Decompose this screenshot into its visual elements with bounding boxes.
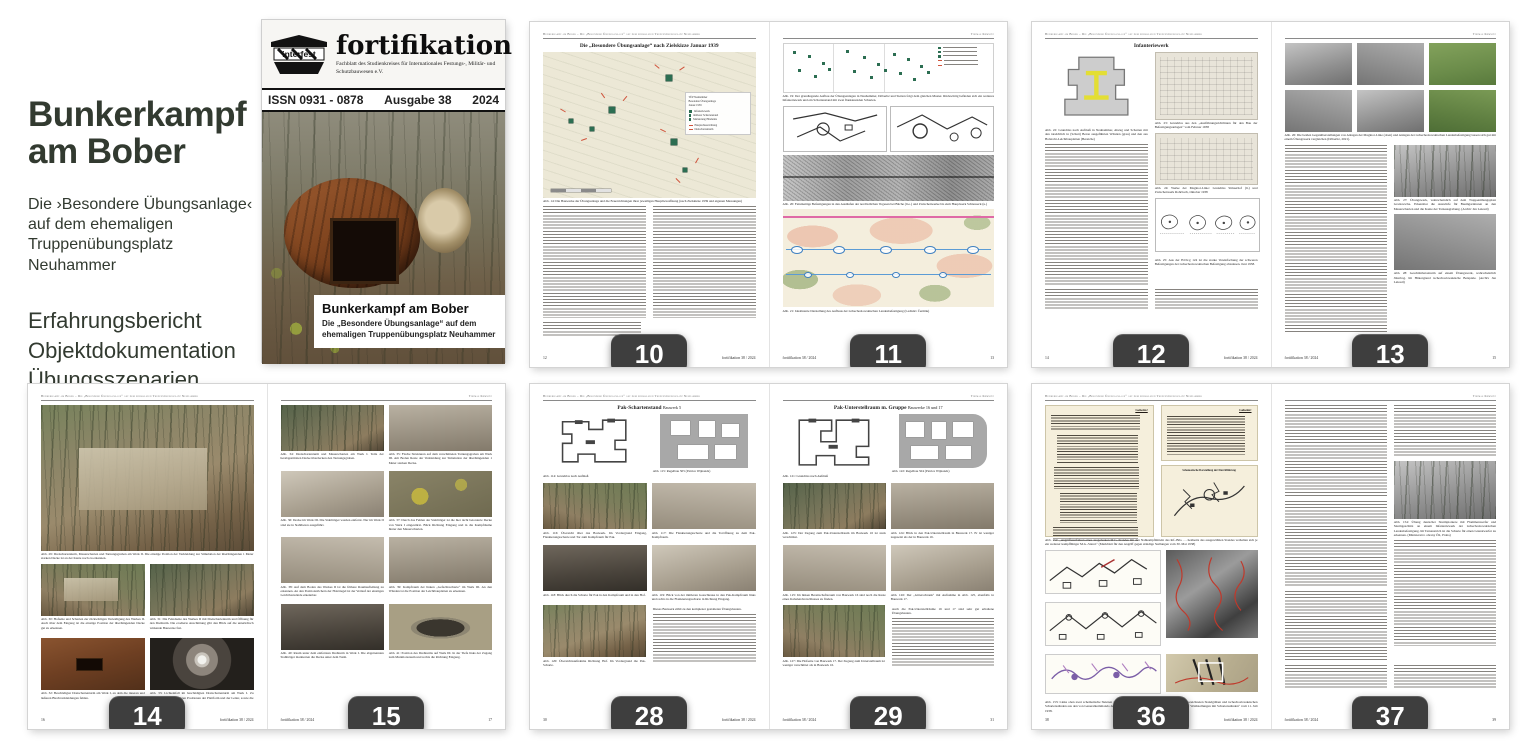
- figure-caption: Abb. 24: Werke der Maginot-Linie: Grundr…: [1155, 186, 1258, 195]
- figure-caption: Abb. 37: Durch das Fehlen der Stahlträge…: [389, 518, 492, 531]
- left-column: Abb. 22: Grundriss nach Aufmaß in Neuham…: [1045, 52, 1148, 286]
- page-thumbnail-14[interactable]: Bunkerkampf am Bober – Die „Besondere Üb…: [28, 384, 267, 729]
- magazine-title: fortifikation: [336, 33, 512, 59]
- page-thumbnail-12[interactable]: Bunkerkampf am Bober – Die „Besondere Üb…: [1032, 22, 1271, 367]
- journal-footer: fortifikation 38 / 2024: [783, 718, 817, 722]
- fort-symbol: [880, 246, 892, 254]
- figure-caption: Abb. 119: Blick von der mittleren Gassch…: [652, 593, 756, 602]
- figure-caption: Abb. 122: Regelbau 504 (Patrice Wijnands…: [892, 469, 994, 473]
- figure-cell: Abb. 35: Flache Strukturen auf dem versc…: [389, 405, 492, 468]
- photo-thumbnail: [652, 545, 756, 591]
- fort-symbol: [939, 272, 947, 278]
- title-line-1: Bunkerkampf: [28, 97, 263, 134]
- plan-room: [906, 422, 924, 437]
- figure-cell: Abb. 120: Übersichtsaufnahme Richtung Ho…: [543, 605, 646, 670]
- floorplan-figure: [1045, 52, 1148, 122]
- badge-number: 13: [1376, 339, 1405, 368]
- folio: 12: [543, 356, 547, 360]
- figure-cell: Abb. 122: Regelbau 504 (Patrice Wijnands…: [892, 414, 994, 477]
- figure-cell: Abb. 37: Durch das Fehlen der Stahlträge…: [389, 471, 492, 534]
- plan-room: [932, 422, 946, 439]
- figure-cell: Abb. 124: Blick in den Pak-Unterstellrau…: [891, 483, 994, 542]
- fire-direction-mark: [654, 64, 659, 69]
- photo-thumbnail: [1394, 214, 1496, 270]
- legend-swatch-green: [938, 51, 941, 54]
- pdf-page-badge: 29: [850, 696, 926, 729]
- map-legend: TÜP Neuhammer Besondere Übungsanlage Jan…: [685, 92, 751, 136]
- figure-cell: Abb. 118: Blick durch die Scharte für Pa…: [543, 545, 647, 604]
- folio: 14: [1045, 356, 1049, 360]
- photo-thumbnail: [543, 483, 647, 529]
- photo-thumbnail: [389, 537, 492, 583]
- legend-swatch-red: [689, 125, 693, 126]
- figure-cell: Abb. 36: Decke im Werk III. Die Stahlträ…: [281, 471, 384, 534]
- figure-cell: Abb. 34: Dreischartenturm und Mauerschar…: [281, 405, 384, 468]
- spread-10-11: Bunkerkampf am Bober – Die „Besondere Üb…: [530, 22, 1007, 367]
- figure-caption: Abb. 118: Blick durch die Scharte für Pa…: [543, 593, 647, 597]
- spread-36-37: Bunkerkampf am Bober – Die „Besondere Üb…: [1032, 384, 1509, 729]
- article-section-title: Die „Besondere Übungsanlage“ nach Zielsk…: [543, 43, 756, 49]
- figure-cell: Abb. 38: Auf dem Boden des Werkes II ist…: [281, 537, 384, 600]
- legend-item: [938, 64, 990, 67]
- section-title-text: Pak-Unterstellraum m. Gruppe: [834, 405, 907, 411]
- plan-room: [715, 445, 736, 459]
- body-text-placeholder: [1285, 501, 1387, 587]
- figure-caption: Abb. 38: Auf dem Boden des Werkes II ist…: [281, 585, 384, 598]
- running-header-author: Thomas Kemnitz: [783, 32, 995, 39]
- legend-swatch-red: [689, 129, 693, 130]
- figure-cell: Abb. 123: Der Zugang zum Pak-Unterstellr…: [783, 483, 886, 542]
- journal-footer: fortifikation 38 / 2024: [220, 718, 254, 722]
- folio: 31: [990, 718, 994, 722]
- figure-caption: Abb. 19: Der grundlegende Aufbau der Übu…: [783, 94, 995, 103]
- footnotes-placeholder: [1285, 665, 1387, 689]
- scheme-dots: [893, 53, 896, 56]
- plan-room: [671, 421, 690, 435]
- figure-caption: Abb. 114: Grundriss nach Aufmaß: [543, 474, 646, 478]
- planning-map: [1166, 654, 1257, 692]
- map-marker: [569, 119, 573, 123]
- body-column: Dieses Bauwerk zählt zu den komplexer ge…: [653, 605, 756, 670]
- journal-footer: fortifikation 38 / 2024: [1224, 718, 1258, 722]
- map-scale-bar: [551, 189, 611, 192]
- cover-photo: Bunkerkampf am Bober Die „Besondere Übun…: [262, 112, 505, 364]
- bunker-structure: [79, 448, 207, 509]
- figure-caption: Abb. 14: Die Bauwerke der Übungsanlage u…: [543, 199, 756, 203]
- section-title-text: Pak-Schartenstand: [617, 405, 661, 411]
- badge-number: 11: [875, 339, 903, 368]
- figure-caption: Abb. 115: Regelbau 505 (Patrice Wijnands…: [653, 469, 756, 473]
- left-column: [1285, 405, 1387, 661]
- map-marker: [590, 127, 594, 131]
- running-header: Bunkerkampf am Bober – Die „Besondere Üb…: [1045, 32, 1258, 39]
- legend-swatch-green: [938, 47, 941, 50]
- legend-label-placeholder: [944, 64, 978, 67]
- figure-caption: Abb. 117: Die Flankierungsscharte und di…: [652, 531, 756, 540]
- figure-caption: Abb. 23: Grundriss aus den „Ausführungsr…: [1155, 121, 1258, 130]
- body-text-placeholder: [653, 614, 756, 662]
- body-text-placeholder: [1285, 591, 1387, 661]
- plan-room: [911, 446, 937, 459]
- title-line-2: am Bober: [28, 134, 263, 171]
- badge-number: 10: [635, 339, 664, 368]
- article-section-title: Pak-Schartenstand Bauwerk 5: [543, 405, 756, 411]
- fort-symbol: [791, 246, 803, 254]
- photo-thumbnail: [281, 471, 384, 517]
- photo-thumbnail: [389, 471, 492, 517]
- cupola-aperture: [330, 218, 399, 284]
- comparison-figure: [783, 43, 995, 93]
- body-text-placeholder: [1394, 540, 1496, 646]
- legend-swatch-red: [938, 60, 942, 61]
- figure-cell: Abb. 39: Kampfraum der linken „Gefechtss…: [389, 537, 492, 600]
- figure-caption: Abb. 26: Die beiden Gegenüberstellungen …: [1285, 133, 1497, 142]
- cover-article-subtitle: Die „Besondere Übungsanlage“ auf dem ehe…: [322, 319, 497, 341]
- pdf-page-badge: 13: [1352, 334, 1428, 367]
- body-text-placeholder: [1285, 145, 1387, 333]
- body-text-start: Auch die Pak-Unterstellräume 16 und 17 s…: [892, 607, 994, 616]
- journal-footer: fortifikation 38 / 2024: [1285, 356, 1319, 360]
- figure-caption: Abb. 121: Grundriss nach Aufmaß: [783, 474, 885, 478]
- photo-thumbnail: [543, 545, 647, 591]
- article-section-title: Pak-Unterstellraum m. Gruppe Bauwerke 16…: [783, 405, 995, 411]
- floorplan-drawing: [550, 414, 638, 468]
- photo-thumbnail: [1429, 90, 1496, 132]
- legend-swatch-green: [689, 118, 692, 121]
- magazine-cover[interactable]: interfest fortifikation Fachblatt des St…: [262, 20, 505, 362]
- issn-bar: ISSN 0931 - 0878 Ausgabe 38 2024: [262, 88, 505, 112]
- running-header: Bunkerkampf am Bober – Die „Besondere Üb…: [543, 394, 756, 401]
- regelbau-plan: [660, 414, 748, 468]
- article-section-title: Infanteriewerk: [1045, 43, 1258, 49]
- typed-text-placeholder: [1060, 493, 1137, 523]
- folio: 38: [1045, 718, 1049, 722]
- legend-item: [938, 55, 990, 58]
- legend-label: Dreischartenturm: [695, 128, 714, 132]
- fort-symbol: [924, 246, 936, 254]
- typed-text-placeholder: [1051, 415, 1140, 431]
- cover-header: interfest fortifikation Fachblatt des St…: [262, 20, 505, 88]
- photo-thumbnail: [1285, 43, 1352, 85]
- feature-item: Erfahrungsbericht: [28, 306, 263, 335]
- photo-thumbnail: [891, 545, 994, 591]
- schematic-drawing: [1162, 472, 1257, 528]
- fort-symbol: [833, 246, 845, 254]
- photo-thumbnail: [543, 605, 646, 657]
- bunker-line: [786, 274, 992, 275]
- pdf-page-badge: 14: [109, 696, 185, 729]
- figure-cell: Abb. 31: Die Feindseite des Werkes II mi…: [150, 564, 254, 633]
- figure-caption: Abb. 28: Geschützbetonturm auf einem Übu…: [1394, 271, 1496, 284]
- typed-text-placeholder: [1054, 467, 1139, 489]
- fire-direction-mark: [560, 108, 566, 112]
- folio: 15: [1492, 356, 1496, 360]
- figure-cell: Abb. 115: Regelbau 505 (Patrice Wijnands…: [653, 414, 756, 477]
- legend-label-placeholder: [944, 60, 978, 63]
- section-title-sub: Bauwerk 5: [663, 405, 681, 410]
- figure-caption: Abb. 40: Raum unter dem entfernten Dreht…: [281, 651, 384, 660]
- fire-direction-mark: [660, 129, 666, 132]
- running-header: Bunkerkampf am Bober – Die „Besondere Üb…: [1045, 394, 1258, 401]
- photo-thumbnail: [41, 638, 145, 690]
- fortification-sketch: [783, 106, 887, 152]
- photo-thumbnail: [41, 405, 254, 551]
- scheme-panel: [885, 44, 935, 92]
- folio: 13: [990, 356, 994, 360]
- figure-caption: Abb. 31: Die Feindseite des Werkes II mi…: [150, 617, 254, 630]
- page-thumbnail-28[interactable]: Bunkerkampf am Bober – Die „Besondere Üb…: [530, 384, 769, 729]
- legend-label: Markierung Hindernis: [693, 118, 717, 122]
- planning-map-overlay: [1166, 654, 1257, 692]
- sketch-column: [1045, 654, 1159, 699]
- typed-text-placeholder: [1053, 527, 1138, 541]
- badge-number: 37: [1376, 701, 1405, 730]
- fort-symbol: [804, 272, 812, 278]
- geheim-stamp: Geheim!: [1135, 408, 1147, 412]
- footnotes-placeholder: [1045, 289, 1148, 309]
- figure-cell: Abb. 117: Die Flankierungsscharte und di…: [652, 483, 756, 542]
- cupola-damage-hole: [418, 188, 471, 254]
- issue: Ausgabe 38: [384, 93, 451, 107]
- running-header-author: Thomas Kemnitz: [783, 394, 995, 401]
- figure-cell: Abb. 40: Raum unter dem entfernten Dreht…: [281, 604, 384, 663]
- attack-scheme-sketch: [1045, 602, 1161, 646]
- journal-footer: fortifikation 38 / 2024: [783, 356, 817, 360]
- attack-scheme-sketch: [1045, 550, 1161, 594]
- badge-number: 28: [635, 701, 664, 730]
- photo-thumbnail: [150, 564, 254, 616]
- figure-caption: Abb. 127: Die Hofseite von Bauwerk 17. D…: [783, 659, 885, 668]
- map-marker: [671, 139, 677, 145]
- body-text-placeholder: [1285, 405, 1387, 497]
- photo-thumbnail: [1394, 461, 1496, 519]
- journal-footer: fortifikation 38 / 2024: [281, 718, 315, 722]
- body-text-start: Dieses Bauwerk zählt zu den komplexer ge…: [653, 607, 756, 611]
- bunker-structure: [64, 578, 118, 601]
- feature-list: Erfahrungsbericht Objektdokumentation Üb…: [28, 306, 263, 394]
- figure-cell: Abb. 116: Übersicht über das Bauwerk. Im…: [543, 483, 647, 542]
- photo-thumbnail: [281, 405, 384, 451]
- footnotes-placeholder: [1155, 289, 1258, 309]
- historic-plan-figure: [1155, 133, 1258, 185]
- photo-thumbnail: [1285, 90, 1352, 132]
- figure-caption: Abb. 41: Position des Drehturms auf Werk…: [389, 651, 492, 660]
- figure-cell: Abb. 126: Der „Gitterschrank“ mit Aufnah…: [891, 545, 994, 604]
- issn: ISSN 0931 - 0878: [268, 93, 363, 107]
- site-map-figure: TÜP Neuhammer Besondere Übungsanlage Jan…: [543, 52, 756, 198]
- scheme-dots: [793, 51, 796, 54]
- pdf-page-badge: 28: [611, 696, 687, 729]
- photo-thumbnail: [1357, 90, 1424, 132]
- figure-cell: Abb. 30: Hofseite und Scharten zur rückw…: [41, 564, 145, 633]
- photo-thumbnail: [783, 545, 886, 591]
- badge-number: 12: [1137, 339, 1166, 368]
- legend-swatch-green: [938, 55, 941, 58]
- pdf-page-badge: 12: [1113, 334, 1189, 367]
- folio: 17: [488, 718, 492, 722]
- figure-caption: Abb. 21: Idealisierte Darstellung des Au…: [783, 309, 995, 313]
- cover-caption-box: Bunkerkampf am Bober Die „Besondere Übun…: [314, 295, 505, 348]
- right-doc-column: Geheim! Schematische Darstellung der Dur…: [1161, 405, 1258, 537]
- figure-caption: Abb. 35: Flache Strukturen auf dem versc…: [389, 452, 492, 465]
- legend-label-placeholder: [943, 51, 977, 54]
- secret-document-scan: Geheim!: [1161, 405, 1258, 461]
- typed-text-placeholder: [1057, 435, 1138, 463]
- map-marker: [666, 75, 672, 81]
- svg-text:interfest: interfest: [282, 49, 316, 59]
- figure-cell: Abb. 114: Grundriss nach Aufmaß: [543, 414, 646, 482]
- magazine-subtitle: Fachblatt des Studienkreises für Interna…: [336, 61, 512, 76]
- figure-cell: Abb. 125: Im linken Bereitschaftsraum vo…: [783, 545, 886, 604]
- photo-thumbnail: [41, 564, 145, 616]
- legend-item: [938, 60, 990, 63]
- feature-item: Objektdokumentation: [28, 336, 263, 365]
- figure-caption: Abb. 123: Der Zugang zum Pak-Unterstellr…: [783, 531, 886, 540]
- body-text-placeholder: [1394, 405, 1496, 457]
- cover-title-block: fortifikation Fachblatt des Studienkreis…: [336, 33, 512, 76]
- journal-footer: fortifikation 38 / 2024: [1224, 356, 1258, 360]
- figure-cell: Abb. 127: Die Hofseite von Bauwerk 17. D…: [783, 605, 885, 670]
- photo-thumbnail: [1357, 43, 1424, 85]
- page-thumbnail-15[interactable]: Thomas Kemnitz Abb. 34: Dreischartenturm…: [267, 384, 506, 729]
- typed-text-placeholder: [1167, 416, 1245, 456]
- photo-thumbnail: [1429, 43, 1496, 85]
- fire-direction-mark: [601, 93, 605, 98]
- badge-number: 29: [874, 701, 903, 730]
- running-header-author: Thomas Kemnitz: [281, 394, 493, 401]
- legend-label-placeholder: [943, 55, 977, 58]
- right-column: Abb. 27: Übungswerk, wahrscheinlich auf …: [1394, 145, 1496, 333]
- figure-caption: Abb. 25: Aus der H.Dv.g 124 ist die star…: [1155, 258, 1258, 267]
- spread-14-15: Bunkerkampf am Bober – Die „Besondere Üb…: [28, 384, 505, 729]
- page-thumbnail-11[interactable]: Thomas Kemnitz Abb. 19: Der grundlegende…: [769, 22, 1008, 367]
- right-column: Abb. 154: Übung deutscher Sturmpioniere …: [1394, 405, 1496, 661]
- photo-thumbnail: [783, 483, 886, 529]
- figure-caption: Abb. 120: Übersichtsaufnahme Richtung Ho…: [543, 659, 646, 668]
- badge-number: 14: [133, 701, 162, 730]
- legend-item: [938, 47, 990, 50]
- right-column: Abb. 23: Grundriss aus den „Ausführungsr…: [1155, 52, 1258, 286]
- figure-caption: Abb. 22: Grundriss nach Aufmaß in Neuham…: [1045, 128, 1148, 141]
- subtitle: Die ›Besondere Übungsanlage‹ auf dem ehe…: [28, 195, 263, 277]
- folio: 16: [41, 718, 45, 722]
- cover-article-title: Bunkerkampf am Bober: [322, 301, 497, 316]
- page-title: Bunkerkampf am Bober: [28, 97, 263, 171]
- running-header-author: Thomas Kemnitz: [1285, 394, 1497, 401]
- fortification-line-map: [783, 209, 995, 307]
- page-thumbnail-10[interactable]: Bunkerkampf am Bober – Die „Besondere Üb…: [530, 22, 769, 367]
- figure-caption: Abb. 29: Dreischartenturm, Mauerscharten…: [41, 552, 254, 561]
- sketch-column: [1045, 550, 1159, 651]
- pdf-page-badge: 15: [348, 696, 424, 729]
- folio: 30: [543, 718, 547, 722]
- spread-12-13: Bunkerkampf am Bober – Die „Besondere Üb…: [1032, 22, 1509, 367]
- exercise-sketch-purple: [1045, 654, 1161, 694]
- floorplan-drawing: [790, 414, 878, 468]
- plan-room: [953, 422, 972, 437]
- photo-thumbnail: [1394, 145, 1496, 197]
- pdf-page-badge: 37: [1352, 696, 1428, 729]
- fire-direction-mark: [695, 157, 699, 163]
- aerial-photo: [1166, 550, 1257, 638]
- figure-cell: Abb. 119: Blick von der mittleren Gassch…: [652, 545, 756, 604]
- bunker-diagrams-figure: [1155, 198, 1260, 252]
- fort-symbol: [892, 272, 900, 278]
- figure-legend: [935, 44, 993, 92]
- photo-thumbnail: [389, 604, 492, 650]
- badge-number: 36: [1137, 701, 1166, 730]
- journal-footer: fortifikation 38 / 2024: [722, 718, 756, 722]
- fire-direction-mark: [581, 138, 587, 141]
- fort-symbol: [967, 246, 979, 254]
- page-thumbnail-29[interactable]: Thomas Kemnitz Pak-Unterstellraum m. Gru…: [769, 384, 1008, 729]
- legend-item: [938, 51, 990, 54]
- spread-28-29: Bunkerkampf am Bober – Die „Besondere Üb…: [530, 384, 1007, 729]
- figure-caption: Abb. 125: Im linken Bereitschaftsraum vo…: [783, 593, 886, 602]
- figure-cell: Abb. 41: Position des Drehturms auf Werk…: [389, 604, 492, 663]
- running-header-author: Thomas Kemnitz: [1285, 32, 1497, 39]
- figure-caption: Abb. 39: Kampfraum der linken „Gefechtss…: [389, 585, 492, 594]
- legend-label-placeholder: [943, 47, 977, 50]
- geheim-stamp: Geheim!: [1239, 408, 1251, 412]
- body-column: Auch die Pak-Unterstellräume 16 und 17 s…: [892, 605, 994, 670]
- figure-caption: Abb. 154: Übung deutscher Sturmpioniere …: [1394, 520, 1496, 537]
- valley-line: [783, 176, 995, 179]
- figure-cell: Abb. 121: Grundriss nach Aufmaß: [783, 414, 885, 482]
- plan-room: [946, 446, 971, 459]
- body-text-placeholder: [892, 618, 994, 666]
- fort-symbol: [846, 272, 854, 278]
- figure-caption: Abb. 34: Dreischartenturm und Mauerschar…: [281, 452, 384, 461]
- figure-caption: Abb. 30: Hofseite und Scharten zur rückw…: [41, 617, 145, 630]
- folio: 39: [1492, 718, 1496, 722]
- year: 2024: [472, 93, 499, 107]
- scheme-dots: [846, 50, 849, 53]
- badge-number: 15: [372, 701, 401, 730]
- figure-caption: Abb. 27: Übungswerk, wahrscheinlich auf …: [1394, 198, 1496, 211]
- photo-thumbnail: [281, 604, 384, 650]
- pdf-page-badge: 11: [850, 334, 926, 367]
- schematic-figure: Schematische Darstellung der Durchführun…: [1161, 465, 1258, 537]
- figure-caption: Abb. 124: Blick in den Pak-Unterstellrau…: [891, 531, 994, 540]
- body-text-placeholder: [653, 206, 756, 318]
- figure-caption: Abb. 20: Feindseitige Befestigungen in d…: [783, 202, 995, 206]
- photo-thumbnail: [891, 483, 994, 529]
- page-thumbnail-37[interactable]: Thomas Kemnitz Abb. 154: Übung deutscher…: [1271, 384, 1510, 729]
- footnotes-placeholder: [1394, 665, 1496, 689]
- legend-swatch-green: [689, 114, 692, 117]
- photo-thumbnail: [150, 638, 254, 690]
- plan-room: [722, 424, 740, 437]
- figure-caption: Abb. 116: Übersicht über das Bauwerk. Im…: [543, 531, 647, 540]
- legend-swatch-green: [689, 110, 693, 114]
- figure-caption: Abb. 36: Decke im Werk III. Die Stahlträ…: [281, 518, 384, 527]
- fire-direction-mark: [679, 66, 684, 70]
- legend-item: Markierung Hindernis: [689, 118, 747, 122]
- page-thumbnail-36[interactable]: Bunkerkampf am Bober – Die „Besondere Üb…: [1032, 384, 1271, 729]
- interfest-logo: interfest: [268, 32, 330, 78]
- fortification-sketch: [890, 106, 994, 152]
- map-marker: [683, 168, 687, 172]
- body-text-placeholder: [1045, 144, 1148, 286]
- photo-thumbnail: [652, 483, 756, 529]
- page-thumbnail-13[interactable]: Thomas Kemnitz Abb. 26: Die beiden Gegen…: [1271, 22, 1510, 367]
- fire-direction-mark: [622, 96, 627, 101]
- body-text-placeholder: [543, 206, 646, 318]
- plan-room: [699, 421, 715, 437]
- pdf-page-badge: 10: [611, 334, 687, 367]
- photo-thumbnail: [389, 405, 492, 451]
